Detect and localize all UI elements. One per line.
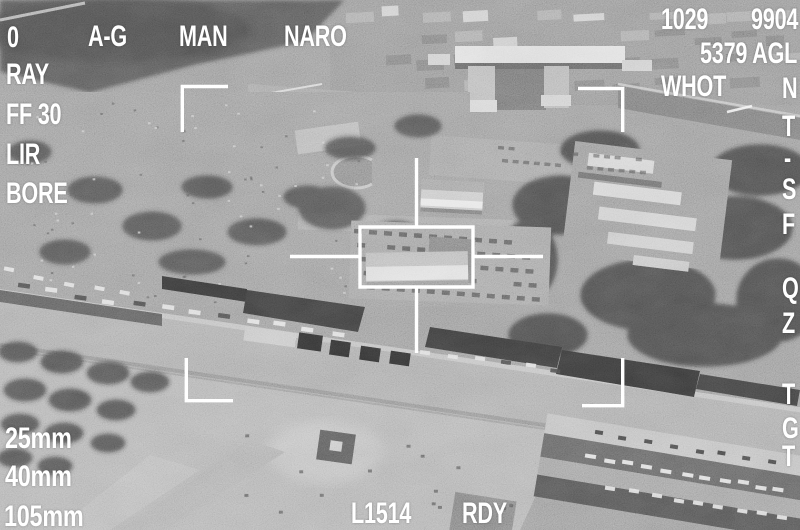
tracking-gate-box bbox=[360, 227, 473, 287]
bracket-upper-right bbox=[578, 89, 623, 133]
targeting-reticle bbox=[0, 0, 800, 530]
bracket-lower-right bbox=[582, 358, 623, 406]
bracket-upper-left bbox=[182, 87, 228, 133]
bracket-lower-left bbox=[186, 358, 233, 401]
sensor-display: 0 A-G MAN NARO RAY FF 30 LIR BORE 1029 9… bbox=[0, 0, 800, 530]
